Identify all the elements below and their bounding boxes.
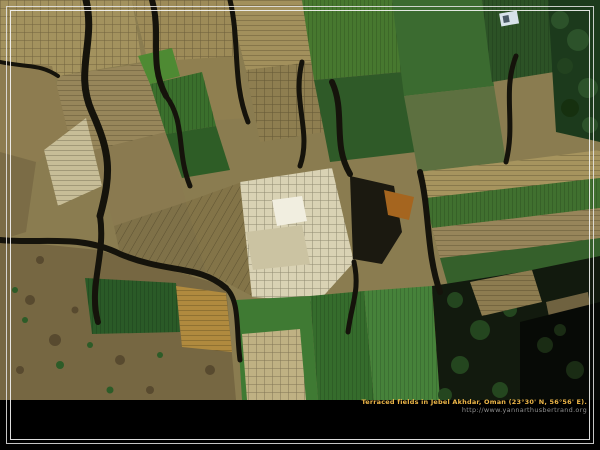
green-fields-bottom: [236, 286, 440, 400]
photo-credit-url: http://www.yannarthusbertrand.org: [361, 406, 587, 414]
tree-cluster: [548, 0, 600, 142]
photo-caption: Terraced fields in Jebel Akhdar, Oman (2…: [361, 398, 587, 406]
aerial-photo: [0, 0, 600, 400]
wallpaper-canvas: Terraced fields in Jebel Akhdar, Oman (2…: [0, 0, 600, 450]
caption-block: Terraced fields in Jebel Akhdar, Oman (2…: [361, 398, 587, 414]
